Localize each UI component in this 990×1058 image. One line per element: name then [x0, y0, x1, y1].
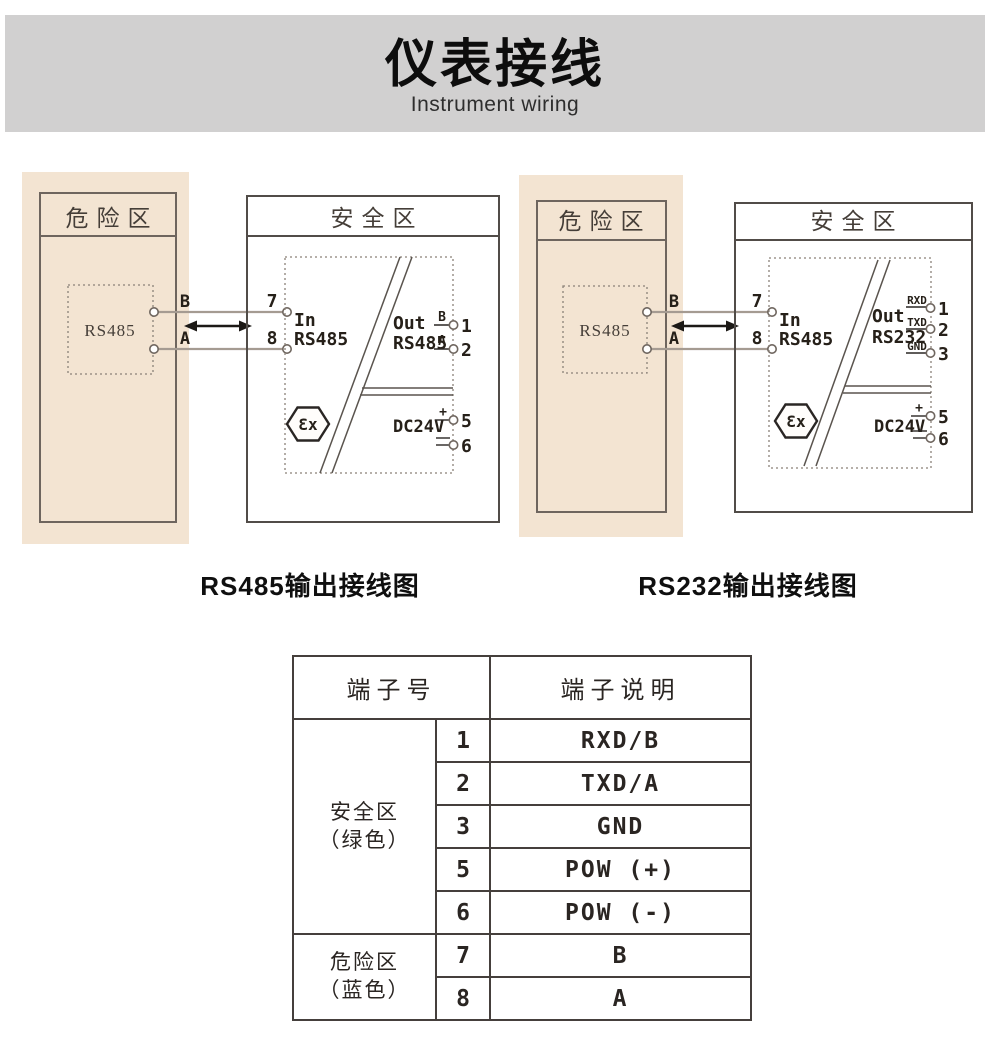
terminal-number-header: 端子号	[293, 656, 490, 719]
terminal-number: 8	[436, 977, 490, 1020]
terminal-desc-header: 端子说明	[490, 656, 751, 719]
in-type-label: RS485	[294, 329, 348, 350]
zone-danger-name: 危险区	[294, 949, 435, 977]
in-terminal-8	[283, 345, 291, 353]
terminal-desc: RXD/B	[490, 719, 751, 762]
svg-text:6: 6	[461, 436, 472, 457]
zone-danger-note: （蓝色）	[294, 977, 435, 1005]
in-terminal-7-label: 7	[752, 291, 763, 312]
in-type-label: RS485	[779, 329, 833, 350]
svg-text:2: 2	[938, 320, 949, 341]
terminal-desc: POW (+)	[490, 848, 751, 891]
isolation-diagonal-1	[320, 257, 400, 473]
danger-zone-label: 危险区	[66, 206, 159, 231]
zone-danger-cell: 危险区 （蓝色）	[293, 934, 436, 1020]
wire-label-a: A	[669, 329, 679, 349]
terminal-desc: A	[490, 977, 751, 1020]
wire-label-a: A	[180, 329, 190, 349]
out-terminal-2: A 2	[434, 334, 472, 361]
power-terminal-6: 6	[436, 436, 472, 457]
out-label: Out	[393, 313, 426, 334]
svg-text:5: 5	[938, 407, 949, 428]
terminal-desc: TXD/A	[490, 762, 751, 805]
out-terminal-3: GND 3	[906, 340, 949, 365]
in-terminal-7-label: 7	[267, 291, 278, 312]
rs485-device-label: RS485	[579, 321, 630, 340]
diagram-rs232: 危险区 RS485 B A 安全区 7 8 In RS485	[519, 175, 972, 537]
terminal-desc: GND	[490, 805, 751, 848]
wire-label-b: B	[669, 292, 679, 312]
svg-text:TXD: TXD	[907, 316, 927, 329]
terminal-number: 1	[436, 719, 490, 762]
terminal-number: 7	[436, 934, 490, 977]
terminal-table: 端子号 端子说明 安全区 （绿色） 1 RXD/B 2 TXD/A 3 GND …	[292, 655, 752, 1021]
svg-text:Ɛx: Ɛx	[298, 415, 318, 434]
diagram-rs485: 危险区 RS485 B A 安全区 7 8	[22, 172, 499, 544]
isolation-diagonal-1	[804, 260, 878, 466]
caption-rs232-wiring: RS232输出接线图	[598, 566, 898, 603]
in-terminal-8-label: 8	[752, 328, 763, 349]
terminal-number: 5	[436, 848, 490, 891]
svg-text:5: 5	[461, 411, 472, 432]
svg-text:RXD: RXD	[907, 294, 927, 307]
in-label: In	[294, 310, 316, 331]
terminal-number: 2	[436, 762, 490, 805]
instrument-wiring-page: 仪表接线 Instrument wiring 危险区 RS485 B A	[0, 0, 990, 1058]
device-terminal-a	[643, 345, 651, 353]
svg-text:1: 1	[461, 316, 472, 337]
svg-text:3: 3	[938, 344, 949, 365]
terminal-desc: B	[490, 934, 751, 977]
svg-text:6: 6	[938, 429, 949, 450]
wiring-diagrams-canvas: 危险区 RS485 B A 安全区 7 8	[0, 0, 990, 620]
svg-text:1: 1	[938, 299, 949, 320]
rs485-device-label: RS485	[84, 321, 135, 340]
danger-zone-label: 危险区	[559, 209, 652, 234]
svg-text:A: A	[438, 334, 446, 349]
terminal-desc: POW (-)	[490, 891, 751, 934]
svg-text:B: B	[438, 310, 446, 325]
svg-text:+: +	[915, 401, 923, 416]
caption-rs485-wiring: RS485输出接线图	[160, 566, 460, 603]
power-label: DC24V	[874, 417, 925, 437]
safe-zone-label: 安全区	[331, 206, 424, 231]
safe-zone-box	[735, 203, 972, 512]
svg-text:Ɛx: Ɛx	[786, 412, 806, 431]
device-terminal-a	[150, 345, 158, 353]
isolation-diagonal-2	[332, 257, 412, 473]
device-terminal-b	[150, 308, 158, 316]
ex-symbol: Ɛx	[287, 408, 329, 441]
ex-symbol: Ɛx	[775, 405, 817, 438]
wire-label-b: B	[180, 292, 190, 312]
safe-zone-label: 安全区	[811, 209, 904, 234]
bidirectional-arrow	[184, 321, 252, 332]
zone-safe-name: 安全区	[294, 799, 435, 827]
device-terminal-b	[643, 308, 651, 316]
out-label: Out	[872, 306, 905, 327]
terminal-number: 3	[436, 805, 490, 848]
in-terminal-8-label: 8	[267, 328, 278, 349]
svg-text:2: 2	[461, 340, 472, 361]
table-header-row: 端子号 端子说明	[293, 656, 751, 719]
svg-text:+: +	[439, 405, 447, 420]
terminal-number: 6	[436, 891, 490, 934]
in-label: In	[779, 310, 801, 331]
table-row: 危险区 （蓝色） 7 B	[293, 934, 751, 977]
svg-text:GND: GND	[907, 340, 927, 353]
in-terminal-7	[283, 308, 291, 316]
zone-safe-note: （绿色）	[294, 827, 435, 855]
table-row: 安全区 （绿色） 1 RXD/B	[293, 719, 751, 762]
bidirectional-arrow	[671, 321, 739, 332]
zone-safe-cell: 安全区 （绿色）	[293, 719, 436, 934]
